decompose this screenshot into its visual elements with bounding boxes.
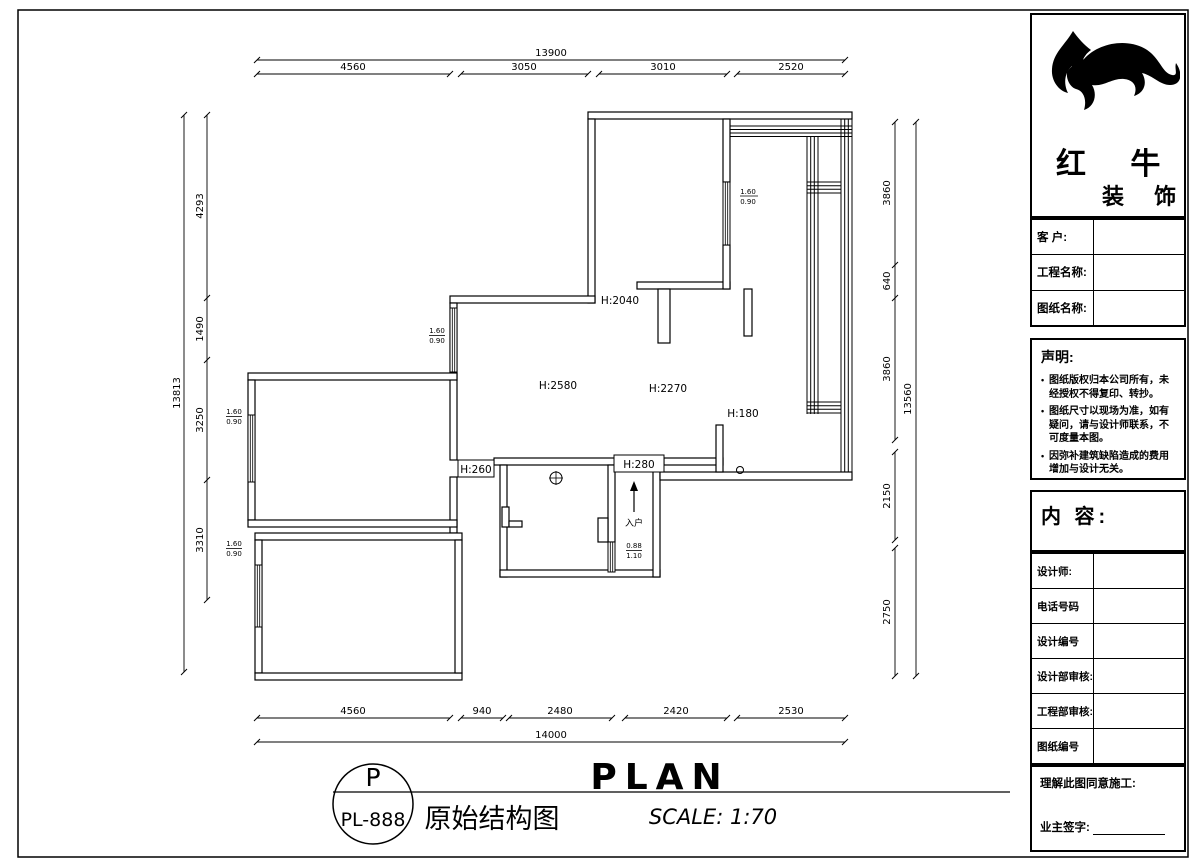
statement-item: 因弥补建筑缺陷造成的费用增加与设计无关。 [1041,450,1178,477]
row-designer: 设计师: [1032,554,1184,588]
scale-label: SCALE: 1:70 [649,805,777,829]
height-labels: H:2040 H:2580 H:2270 H:180 H:260 H:280 [460,295,758,476]
dim-top-total: 13900 [535,48,567,59]
row-design-no-label: 设计编号 [1032,624,1094,658]
svg-text:0.90: 0.90 [226,550,242,558]
dim-top-2: 3050 [511,62,536,73]
footer: P PL-888 原始结构图 PLAN SCALE: 1:70 [333,757,1010,844]
brand-line2: 装 饰 [1102,179,1188,211]
dim-right-total: 13560 [903,383,914,415]
approval-box: 理解此图同意施工: 业主签字: [1030,765,1186,852]
dimensions-top: 13900 4560 3050 3010 2520 [254,48,848,77]
row-eng-review: 工程部审核: [1032,693,1184,728]
owner-signature-field[interactable] [1093,822,1165,835]
dim-bottom-5: 2530 [778,706,803,717]
height-label-entry: H:280 [623,459,654,471]
drawing-title-en: PLAN [590,757,729,798]
statement-box: 声明: 图纸版权归本公司所有，未经授权不得复印、转抄。 图纸尺寸以现场为准，如有… [1030,338,1186,480]
company-logo-box: 红 牛 装 饰 [1030,13,1186,218]
brand-line1: 红 牛 [1056,139,1178,183]
dim-left-4: 3310 [195,527,206,552]
dim-left-3: 3250 [195,407,206,432]
approval-text: 理解此图同意施工: [1040,775,1178,791]
svg-text:1.60: 1.60 [740,188,756,196]
entry-label: 入户 [625,517,643,529]
floor-plan: 入户 H:2040 H:2580 H:2270 H:180 H:260 H:28… [0,0,1200,868]
project-fields: 客 户: 工程名称: 图纸名称: [1030,218,1186,327]
svg-text:1.60: 1.60 [226,408,242,416]
height-label-door: H:2040 [601,295,639,307]
dimensions-left: 4293 1490 3250 3310 13813 [172,112,210,675]
svg-text:1.60: 1.60 [226,540,242,548]
dim-left-1: 4293 [195,193,206,218]
walls [248,112,852,680]
row-phone-label: 电话号码 [1032,589,1094,623]
dim-right-3: 3860 [882,356,893,381]
dim-bottom-total: 14000 [535,730,567,741]
height-label-living: H:2580 [539,380,577,392]
dim-left-2: 1490 [195,316,206,341]
row-design-review: 设计部审核: [1032,658,1184,693]
window-label-living: 1.600.90 [429,327,445,345]
top-bedroom-window-icon [723,182,730,245]
content-box: 内 容: [1030,490,1186,552]
svg-text:1.10: 1.10 [626,552,642,560]
window-label-bedroom1: 1.600.90 [226,408,242,426]
dim-bottom-2: 940 [472,706,491,717]
dim-top-4: 2520 [778,62,803,73]
window-label-bedroom2: 1.600.90 [226,540,242,558]
svg-text:0.88: 0.88 [626,542,642,550]
row-phone: 电话号码 [1032,588,1184,623]
row-designer-label: 设计师: [1032,554,1094,588]
field-project-name-label: 工程名称: [1032,255,1094,289]
svg-text:1.60: 1.60 [429,327,445,335]
dim-bottom-4: 2420 [663,706,688,717]
dim-top-1: 4560 [340,62,365,73]
field-project-name: 工程名称: [1032,254,1184,289]
dim-right-1: 3860 [882,180,893,205]
owner-signature-label: 业主签字: [1040,819,1090,835]
living-window-icon [450,308,457,372]
signature-rows: 设计师: 电话号码 设计编号 设计部审核: 工程部审核: 图纸编号 [1030,552,1186,765]
dim-right-2: 640 [882,271,893,290]
dim-bottom-1: 4560 [340,706,365,717]
statement-title: 声明: [1041,347,1178,367]
window-label-top: 1.600.90 [740,188,758,206]
redniu-bull-logo-icon [1040,29,1180,137]
field-customer-label: 客 户: [1032,220,1094,254]
dim-left-total: 13813 [172,377,183,409]
row-design-no: 设计编号 [1032,623,1184,658]
statement-item: 图纸版权归本公司所有，未经授权不得复印、转抄。 [1041,374,1178,401]
height-label-passage: H:260 [460,464,491,476]
dimensions-right: 3860 640 3860 2150 2750 13560 [882,119,919,679]
dimensions-bottom: 4560 940 2480 2420 2530 14000 [254,706,848,745]
entry-window-icon [608,542,615,572]
statement-item: 图纸尺寸以现场为准，如有疑问，请与设计师联系，不可度量本图。 [1041,405,1178,446]
svg-text:0.90: 0.90 [226,418,242,426]
dim-right-5: 2750 [882,599,893,624]
bedroom2-window-icon [255,565,262,627]
svg-text:0.90: 0.90 [740,198,756,206]
floor-drain-icon [549,471,563,485]
stamp-code: PL-888 [341,809,406,831]
dim-right-4: 2150 [882,483,893,508]
dim-top-3: 3010 [650,62,675,73]
row-eng-review-label: 工程部审核: [1032,694,1094,728]
entry-arrow-icon [630,481,638,512]
row-drawing-no-label: 图纸编号 [1032,729,1094,763]
row-drawing-no: 图纸编号 [1032,728,1184,763]
row-design-review-label: 设计部审核: [1032,659,1094,693]
dim-bottom-3: 2480 [547,706,572,717]
window-label-entry: 0.881.10 [626,542,642,560]
svg-text:0.90: 0.90 [429,337,445,345]
bedroom1-window-icon [248,415,255,482]
stamp-letter: P [365,763,380,792]
height-label-dining: H:2270 [649,383,687,395]
sheet-border [18,10,1188,857]
field-drawing-name-label: 图纸名称: [1032,291,1094,325]
drawing-title-cn: 原始结构图 [425,804,560,835]
field-customer: 客 户: [1032,220,1184,254]
drawing-sheet: 入户 H:2040 H:2580 H:2270 H:180 H:260 H:28… [0,0,1200,868]
field-drawing-name: 图纸名称: [1032,290,1184,325]
content-label: 内 容: [1041,506,1109,528]
height-label-hall: H:180 [727,408,758,420]
